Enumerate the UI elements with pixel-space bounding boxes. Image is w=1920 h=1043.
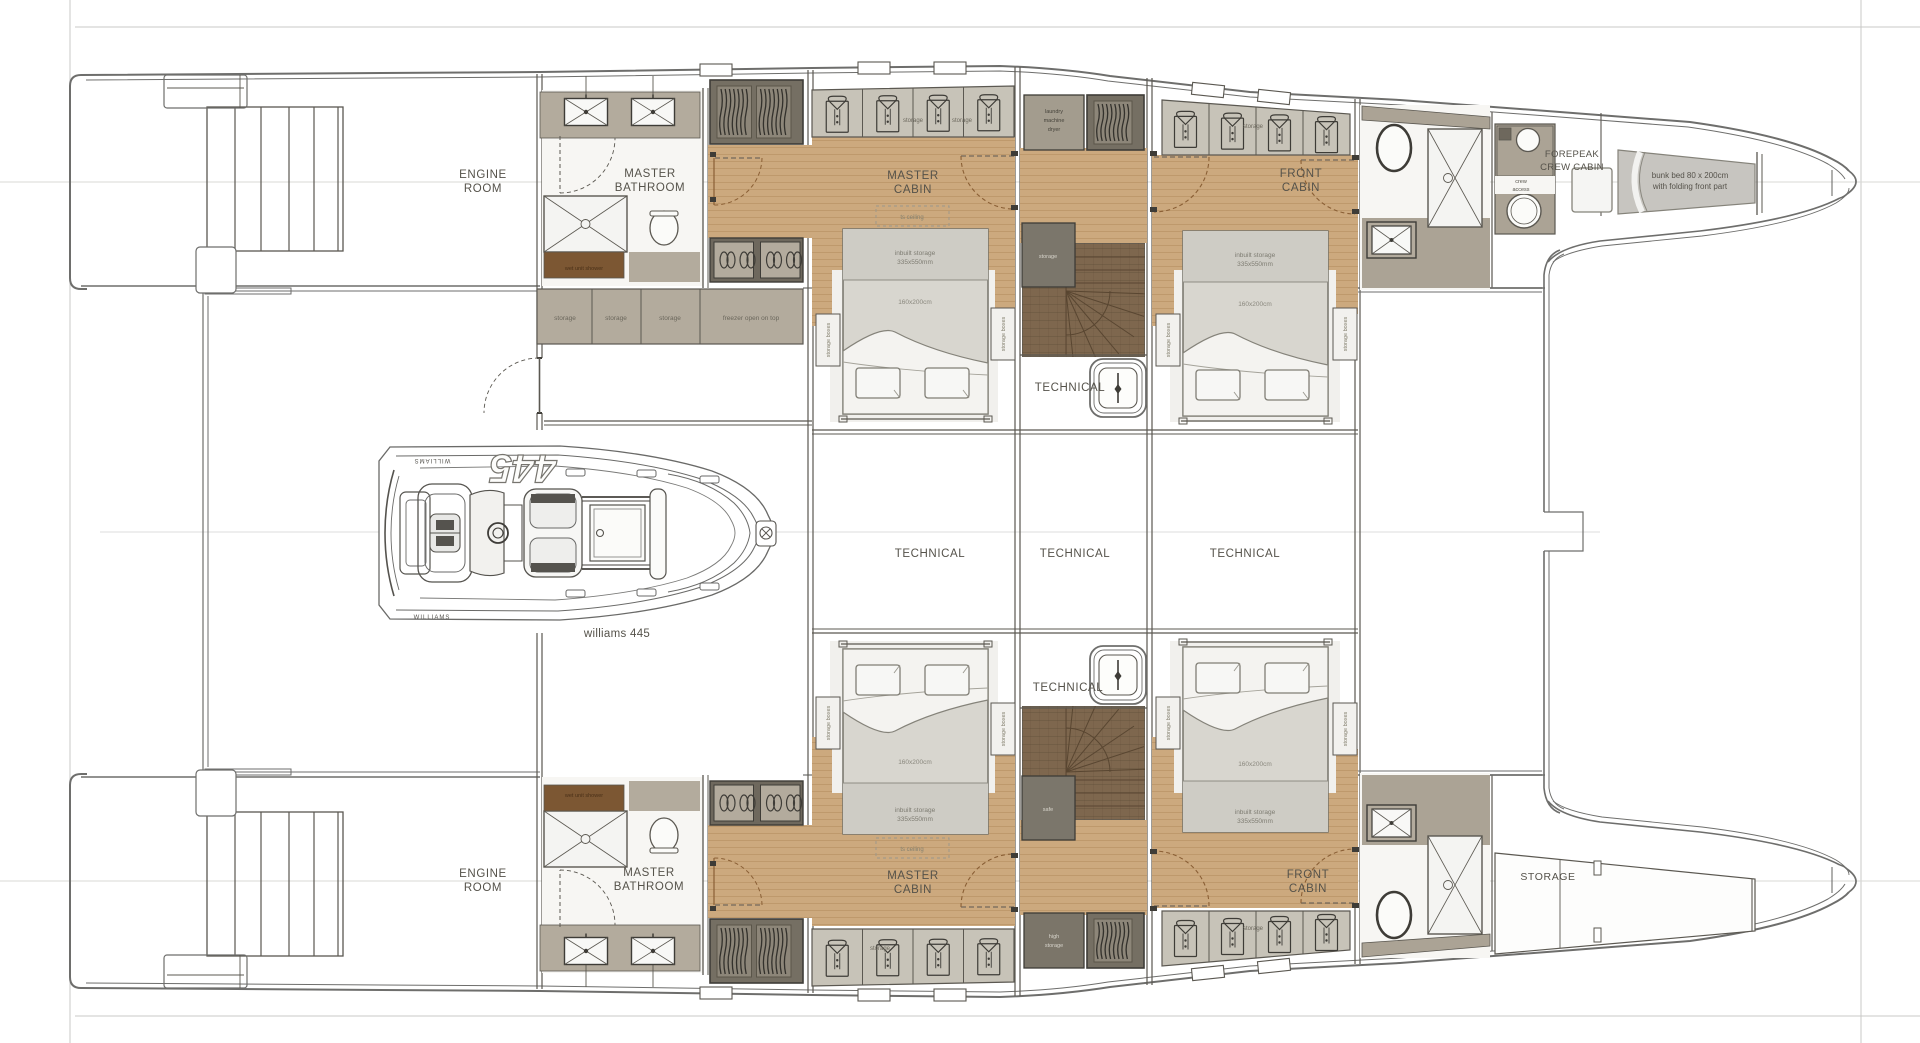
svg-text:freezer open on top: freezer open on top xyxy=(723,315,780,322)
svg-text:445: 445 xyxy=(489,446,557,490)
svg-text:WILLIAMS: WILLIAMS xyxy=(414,615,451,621)
svg-text:TECHNICAL: TECHNICAL xyxy=(1033,682,1104,694)
svg-text:storage: storage xyxy=(659,315,681,322)
svg-text:BATHROOM: BATHROOM xyxy=(615,182,685,194)
svg-text:TECHNICAL: TECHNICAL xyxy=(1210,548,1281,560)
svg-text:CABIN: CABIN xyxy=(894,184,932,196)
svg-text:williams 445: williams 445 xyxy=(583,628,650,640)
svg-text:MASTER: MASTER xyxy=(887,870,939,882)
svg-text:160x200cm: 160x200cm xyxy=(1238,761,1272,768)
svg-text:ENGINE: ENGINE xyxy=(459,868,507,880)
svg-text:wet unit shower: wet unit shower xyxy=(564,793,603,799)
svg-text:storage: storage xyxy=(903,118,924,124)
svg-text:crew: crew xyxy=(1515,179,1527,185)
svg-text:storage: storage xyxy=(554,315,576,322)
svg-text:STORAGE: STORAGE xyxy=(1520,871,1575,883)
svg-text:storage: storage xyxy=(1045,943,1063,949)
svg-text:inbuilt storage: inbuilt storage xyxy=(1235,252,1276,259)
svg-text:ENGINE: ENGINE xyxy=(459,169,507,181)
svg-text:safe: safe xyxy=(1043,807,1053,813)
svg-text:storage boxes: storage boxes xyxy=(1001,711,1007,746)
svg-text:inbuilt storage: inbuilt storage xyxy=(895,807,936,814)
svg-text:TECHNICAL: TECHNICAL xyxy=(1040,548,1111,560)
svg-text:MASTER: MASTER xyxy=(624,168,676,180)
svg-text:storage: storage xyxy=(870,946,891,952)
svg-text:160x200cm: 160x200cm xyxy=(898,299,932,306)
svg-text:MASTER: MASTER xyxy=(887,170,939,182)
svg-text:ROOM: ROOM xyxy=(464,882,502,894)
svg-text:wet unit shower: wet unit shower xyxy=(564,266,603,272)
svg-text:WILLIAMS: WILLIAMS xyxy=(414,457,451,463)
svg-text:storage boxes: storage boxes xyxy=(1343,711,1349,746)
svg-text:storage: storage xyxy=(1039,254,1057,260)
svg-text:dryer: dryer xyxy=(1048,127,1061,133)
svg-text:storage boxes: storage boxes xyxy=(826,322,832,357)
svg-text:high: high xyxy=(1049,934,1059,940)
svg-text:with folding front part: with folding front part xyxy=(1652,182,1728,191)
svg-text:storage boxes: storage boxes xyxy=(1343,316,1349,351)
svg-text:160x200cm: 160x200cm xyxy=(898,759,932,766)
svg-text:storage boxes: storage boxes xyxy=(1166,705,1172,740)
svg-text:laundry: laundry xyxy=(1045,109,1063,115)
svg-text:CABIN: CABIN xyxy=(894,884,932,896)
svg-text:ts ceiling: ts ceiling xyxy=(900,215,923,221)
svg-text:TECHNICAL: TECHNICAL xyxy=(895,548,966,560)
svg-text:storage: storage xyxy=(1243,124,1264,130)
svg-text:BATHROOM: BATHROOM xyxy=(614,881,684,893)
svg-text:access: access xyxy=(1512,187,1529,193)
svg-text:bunk bed 80 x 200cm: bunk bed 80 x 200cm xyxy=(1652,171,1729,180)
svg-text:storage boxes: storage boxes xyxy=(826,705,832,740)
svg-text:inbuilt storage: inbuilt storage xyxy=(1235,809,1276,816)
svg-text:MASTER: MASTER xyxy=(623,867,675,879)
svg-text:CABIN: CABIN xyxy=(1282,182,1320,194)
svg-text:FRONT: FRONT xyxy=(1280,168,1323,180)
svg-text:335x550mm: 335x550mm xyxy=(1237,818,1273,825)
svg-text:CREW CABIN: CREW CABIN xyxy=(1540,162,1604,173)
svg-text:ts ceiling: ts ceiling xyxy=(900,847,923,853)
svg-text:FOREPEAK: FOREPEAK xyxy=(1545,149,1599,160)
svg-text:machine: machine xyxy=(1044,118,1065,124)
svg-text:storage boxes: storage boxes xyxy=(1001,316,1007,351)
svg-text:TECHNICAL: TECHNICAL xyxy=(1035,382,1106,394)
svg-text:160x200cm: 160x200cm xyxy=(1238,301,1272,308)
svg-text:335x550mm: 335x550mm xyxy=(897,816,933,823)
svg-text:ROOM: ROOM xyxy=(464,183,502,195)
svg-text:storage: storage xyxy=(952,118,973,124)
svg-text:storage boxes: storage boxes xyxy=(1166,322,1172,357)
svg-text:FRONT: FRONT xyxy=(1287,869,1330,881)
svg-text:storage: storage xyxy=(1243,926,1264,932)
svg-text:335x550mm: 335x550mm xyxy=(1237,261,1273,268)
svg-text:CABIN: CABIN xyxy=(1289,883,1327,895)
svg-text:inbuilt storage: inbuilt storage xyxy=(895,250,936,257)
svg-text:335x550mm: 335x550mm xyxy=(897,259,933,266)
svg-text:storage: storage xyxy=(605,315,627,322)
